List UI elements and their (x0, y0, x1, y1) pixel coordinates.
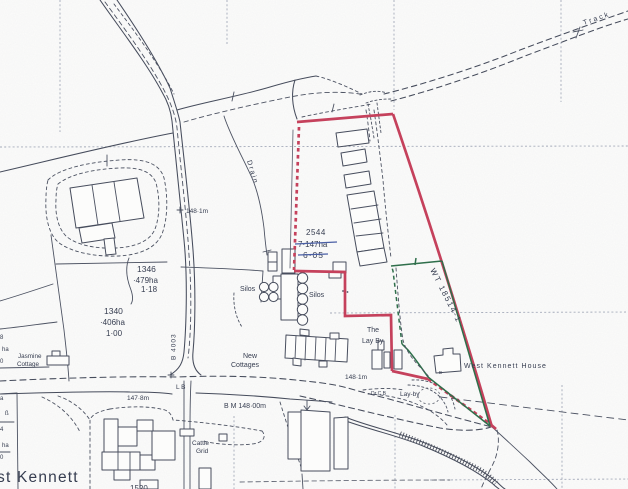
svg-text:ha: ha (2, 347, 9, 353)
svg-text:Cattle: Cattle (192, 440, 209, 447)
svg-text:Lay By: Lay By (362, 338, 384, 345)
svg-text:Dr C B: Dr C B (371, 391, 387, 397)
svg-text:B: B (439, 370, 442, 375)
svg-text:·479ha: ·479ha (133, 276, 158, 285)
svg-text:ha: ha (2, 443, 9, 449)
svg-text:The: The (367, 327, 379, 334)
svg-text:B 4003: B 4003 (171, 333, 178, 360)
svg-text:Jasmine: Jasmine (18, 353, 42, 360)
svg-text:148·1m: 148·1m (345, 374, 367, 381)
svg-text:st Kennett: st Kennett (0, 469, 79, 486)
svg-text:ß: ß (5, 411, 9, 417)
svg-text:1340: 1340 (104, 306, 123, 316)
svg-text:New: New (243, 353, 258, 360)
svg-text:1·18: 1·18 (141, 285, 158, 294)
svg-text:7·147ha: 7·147ha (298, 240, 328, 249)
svg-text:West Kennett House: West Kennett House (464, 363, 547, 370)
svg-text:1520: 1520 (130, 484, 148, 489)
svg-text:·406ha: ·406ha (100, 318, 125, 327)
svg-text:1·00: 1·00 (106, 329, 123, 338)
svg-text:Grid: Grid (196, 448, 209, 455)
svg-text:148·1m: 148·1m (186, 208, 208, 215)
svg-text:Silos: Silos (309, 292, 325, 299)
svg-text:Cottages: Cottages (231, 362, 260, 369)
svg-text:2544: 2544 (306, 228, 326, 237)
svg-text:Silos: Silos (240, 286, 256, 293)
svg-text:L B: L B (176, 384, 186, 391)
svg-text:Lay-by: Lay-by (400, 391, 420, 398)
svg-text:Cottage: Cottage (17, 361, 40, 368)
svg-text:1346: 1346 (137, 264, 156, 274)
svg-text:147·8m: 147·8m (127, 395, 149, 402)
svg-text:B M 148·00m: B M 148·00m (224, 403, 266, 410)
